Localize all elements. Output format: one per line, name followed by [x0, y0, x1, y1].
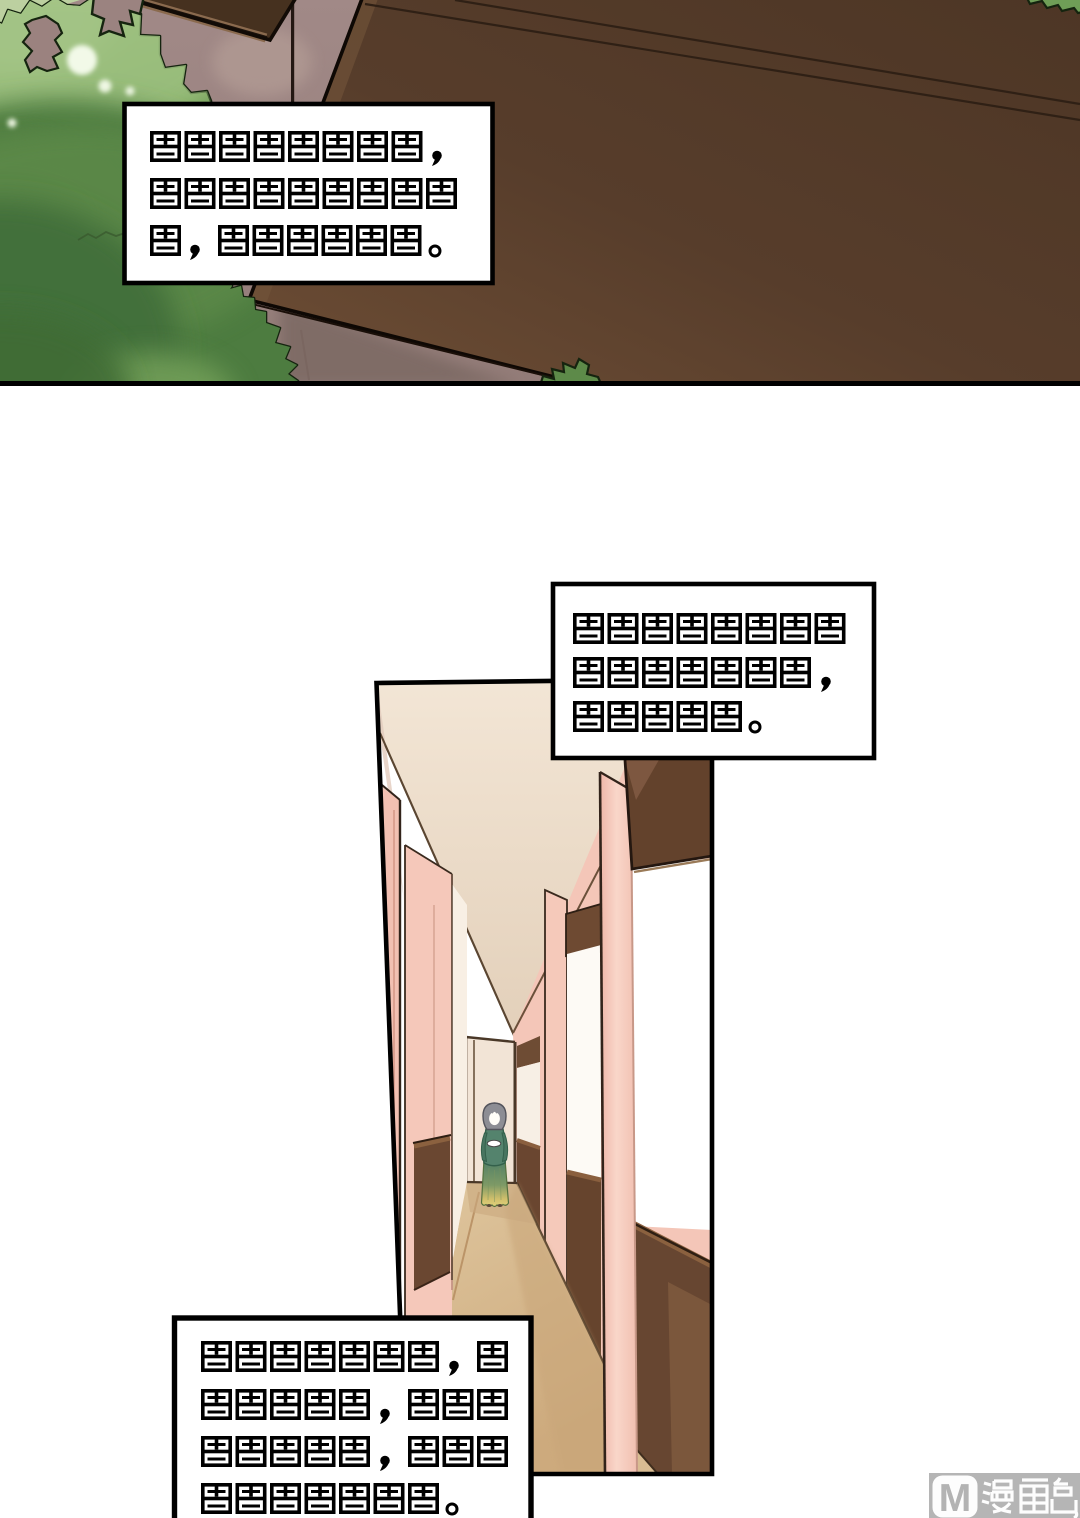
svg-text:M: M	[939, 1477, 972, 1518]
